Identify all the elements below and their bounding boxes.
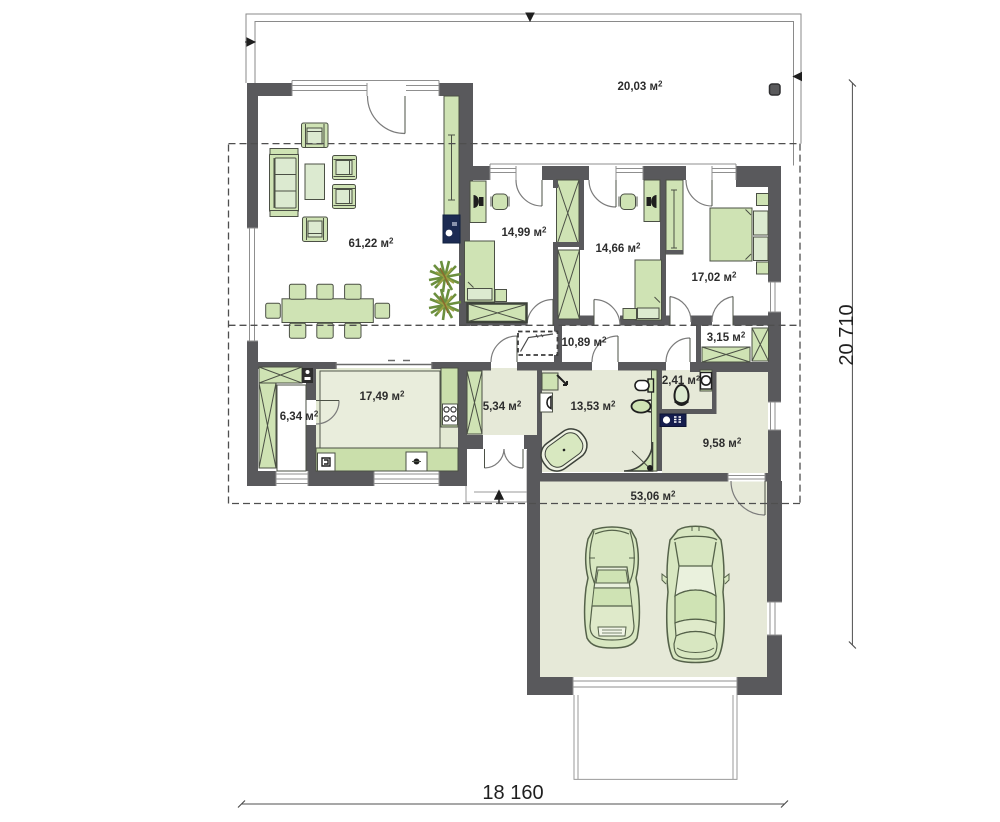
svg-text:5,34 м2: 5,34 м2	[483, 400, 522, 414]
svg-text:14,99 м2: 14,99 м2	[502, 226, 547, 240]
svg-text:14,66 м2: 14,66 м2	[596, 242, 641, 256]
svg-text:2,41 м2: 2,41 м2	[662, 374, 700, 388]
svg-text:18 160: 18 160	[482, 782, 543, 804]
svg-text:17,02 м2: 17,02 м2	[692, 271, 737, 285]
svg-text:20,03 м2: 20,03 м2	[618, 80, 663, 94]
svg-text:3,15 м2: 3,15 м2	[707, 331, 746, 345]
svg-text:10,89 м2: 10,89 м2	[562, 336, 607, 350]
svg-text:53,06 м2: 53,06 м2	[631, 490, 676, 504]
svg-text:61,22 м2: 61,22 м2	[349, 237, 394, 251]
svg-text:20 710: 20 710	[836, 304, 858, 365]
svg-text:17,49 м2: 17,49 м2	[360, 390, 405, 404]
svg-text:6,34 м2: 6,34 м2	[280, 410, 319, 424]
svg-text:9,58 м2: 9,58 м2	[703, 437, 742, 451]
svg-text:13,53 м2: 13,53 м2	[571, 400, 616, 414]
